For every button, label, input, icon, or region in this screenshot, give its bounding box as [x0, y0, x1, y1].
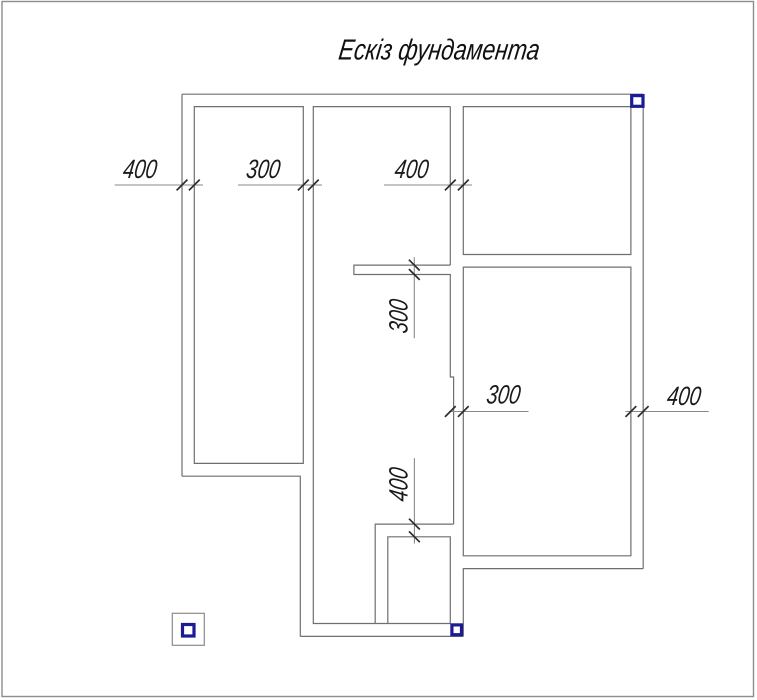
- svg-text:400: 400: [385, 466, 414, 504]
- svg-text:300: 300: [485, 381, 523, 410]
- svg-text:400: 400: [121, 156, 159, 185]
- svg-text:300: 300: [385, 297, 414, 335]
- svg-text:300: 300: [244, 156, 282, 185]
- svg-text:400: 400: [393, 156, 431, 185]
- svg-text:400: 400: [665, 383, 703, 412]
- svg-text:Ескіз фундамента: Ескіз фундамента: [337, 33, 542, 66]
